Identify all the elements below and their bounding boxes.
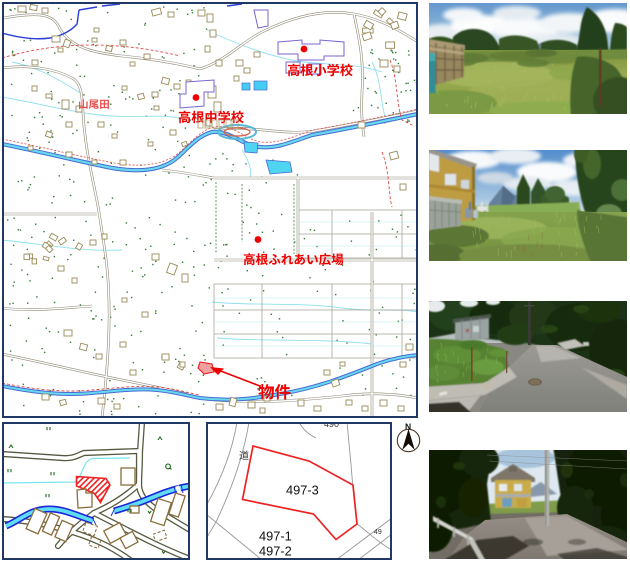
svg-text:497-2: 497-2: [259, 544, 292, 559]
svg-text:497-1: 497-1: [259, 529, 292, 544]
svg-text:49: 49: [374, 529, 382, 536]
svg-text:497-3: 497-3: [286, 483, 319, 498]
